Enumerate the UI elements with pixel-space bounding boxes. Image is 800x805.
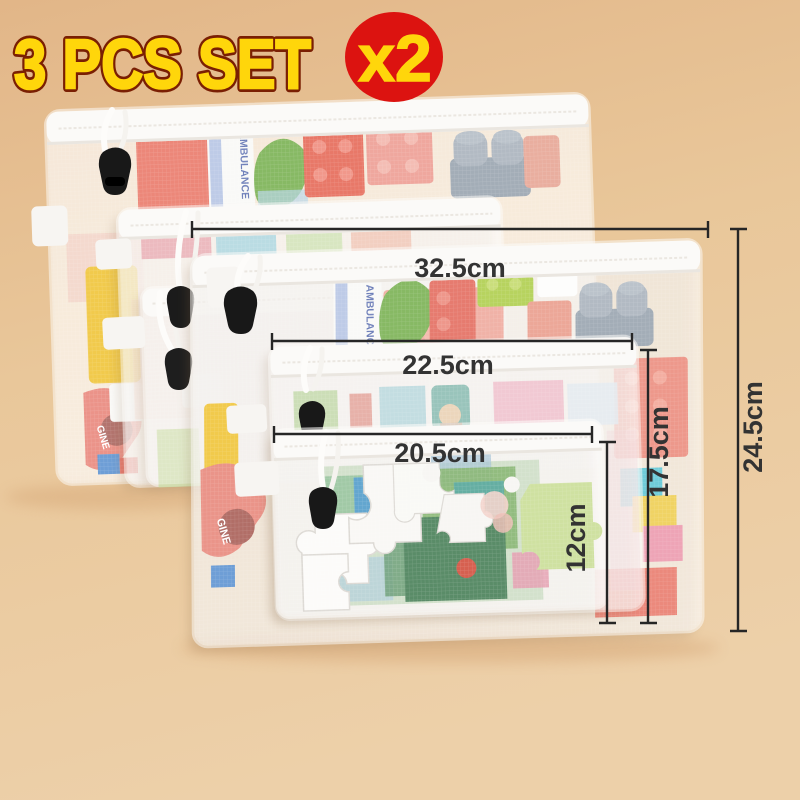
svg-text:12cm: 12cm: [561, 503, 591, 572]
svg-text:22.5cm: 22.5cm: [402, 350, 494, 380]
svg-text:17.5cm: 17.5cm: [644, 406, 674, 498]
svg-text:3 PCS SET: 3 PCS SET: [14, 25, 311, 103]
svg-text:x2: x2: [358, 21, 431, 95]
svg-text:24.5cm: 24.5cm: [738, 381, 768, 473]
svg-text:20.5cm: 20.5cm: [394, 438, 486, 468]
svg-text:32.5cm: 32.5cm: [414, 253, 506, 283]
